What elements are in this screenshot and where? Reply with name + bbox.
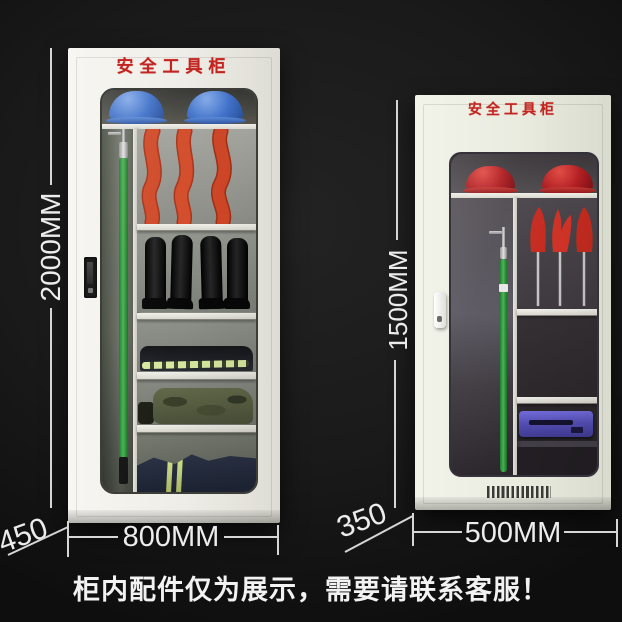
product-image: 安全工具柜 [0,0,622,622]
rod-hook-icon [489,231,502,234]
small-cabinet-title: 安全工具柜 [415,101,611,118]
shelf [137,372,256,380]
large-rod-column [102,129,133,492]
shelf [137,425,256,433]
clothes-compartment [137,319,256,372]
large-top-compartment [102,90,256,124]
toolbox-icon [519,411,593,437]
small-cabinet-window [449,152,599,477]
dimension-tick [412,513,414,546]
uniform-compartment [137,432,256,492]
reflective-stripe [176,456,183,492]
small-cabinet: 安全工具柜 [415,95,611,510]
depth-label-small: 350 [330,495,394,546]
folded-work-clothes-icon [140,346,253,371]
height-label-large: 2000MM [37,172,65,322]
large-cabinet-title: 安全工具柜 [68,56,280,78]
shelf [517,309,597,316]
boots-compartment [137,230,256,312]
large-cabinet-window [100,88,258,494]
insulated-gloves-icon [137,129,256,224]
dimension-line-width-small [414,531,462,533]
rod-tip [122,129,125,142]
dimension-line-height-small [396,100,398,240]
insulated-gloves-on-stands-icon [517,198,597,309]
dimension-line-width-small [564,531,617,533]
red-helmet-icon [539,165,596,194]
large-cabinet-lock [84,257,97,298]
bag-compartment [137,379,256,425]
rod-tip [502,227,505,247]
rod-collar [119,142,128,158]
rod-collar [500,247,507,259]
dimension-tick [616,519,618,547]
rod-grip [119,457,128,484]
small-bottom-compartment [517,447,597,477]
reflective-stripe [166,456,173,492]
blue-helmet-icon [184,91,246,124]
uniform-icon [137,452,256,492]
small-rod-column [451,198,513,475]
small-cabinet-handle [434,292,446,328]
insulated-gloves-compartment [137,129,256,224]
blue-helmet-icon [106,91,167,124]
dimension-line-height-large [50,308,52,508]
shelf [517,397,597,404]
safety-boot-icon [227,238,248,309]
small-cabinet-base [415,497,611,510]
shelf [137,313,256,320]
dimension-line-width-large [224,536,277,538]
dimension-line-width-large [69,536,118,538]
rod-hook-icon [108,132,121,135]
width-label-small: 500MM [462,517,564,550]
height-label-small: 1500MM [384,225,412,375]
reflective-stripe [142,360,249,369]
dimension-line-height-small [394,360,396,508]
toolbox-compartment [517,315,597,441]
safety-boot-icon [170,235,193,310]
small-shelf-column [517,198,597,475]
glove-stand-compartment [517,198,597,309]
dimension-line-height-large [50,48,52,185]
caption-text: 柜内配件仅为展示，需要请联系客服！ [0,568,622,607]
tool-bag-icon [153,388,253,424]
safety-boot-icon [200,236,223,310]
insulated-rod-icon [119,158,128,457]
shelf [137,224,256,231]
rod-band [499,284,508,292]
small-top-compartment [451,154,597,193]
red-helmet-icon [463,166,518,194]
large-cabinet: 安全工具柜 [68,48,280,523]
safety-boot-icon [145,237,166,309]
large-shelf-column [137,129,256,492]
dark-pouch-icon [138,402,154,424]
dimension-tick [277,525,279,555]
width-label-large: 800MM [118,521,224,554]
